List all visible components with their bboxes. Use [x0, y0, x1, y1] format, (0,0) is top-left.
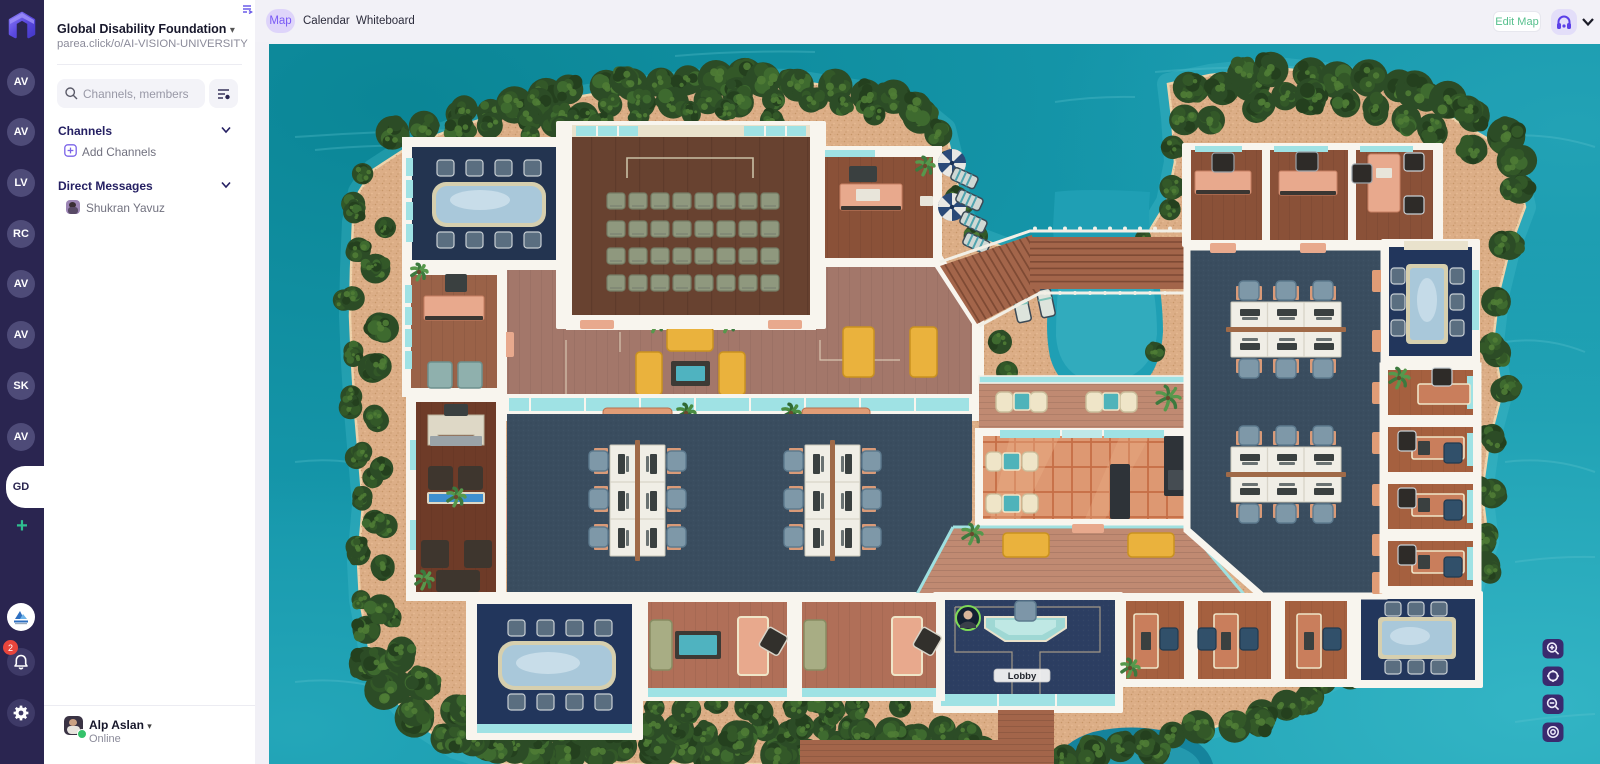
svg-text:Lobby: Lobby — [1008, 671, 1037, 682]
